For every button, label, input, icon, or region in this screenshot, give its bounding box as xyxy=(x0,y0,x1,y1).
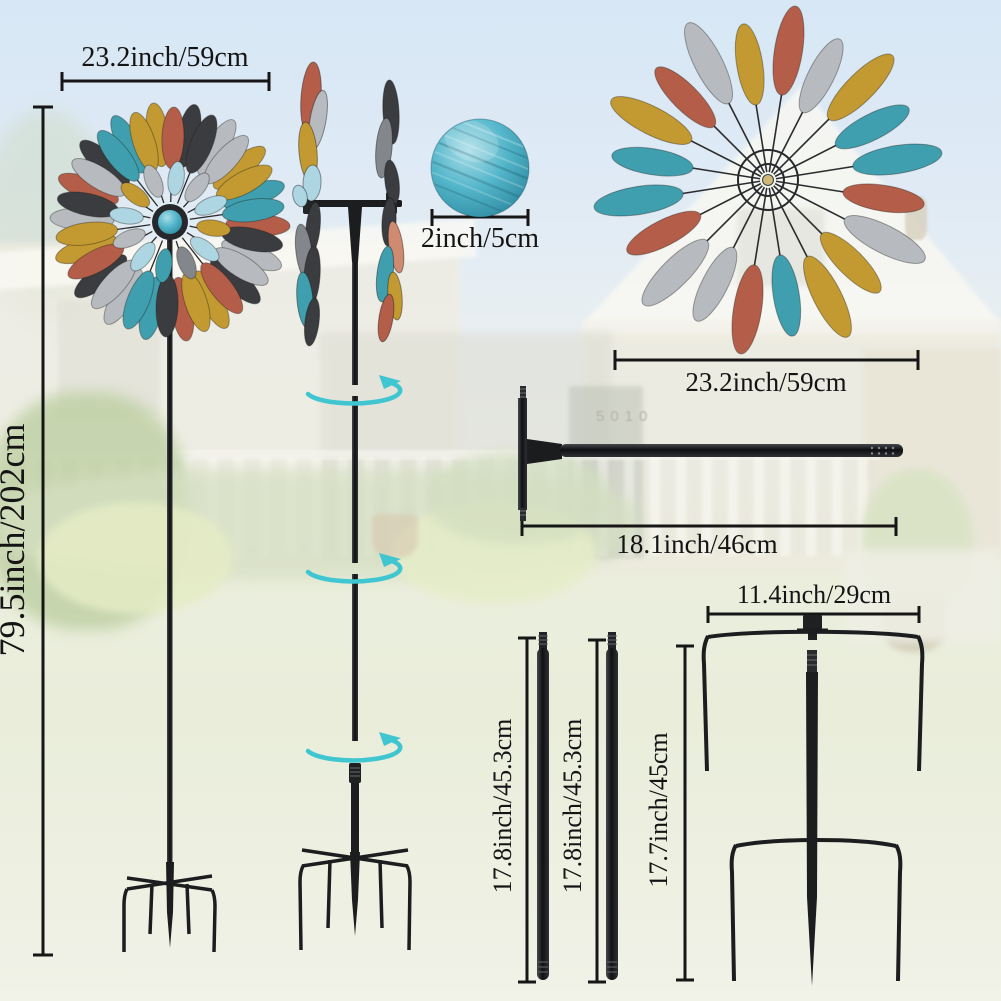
pole-segment-2 xyxy=(352,396,358,563)
extension-pole-2 xyxy=(606,632,618,980)
spinner-blade xyxy=(841,179,926,218)
spinner-spoke xyxy=(706,186,763,243)
measure-pole2-length: 17.8inch/45.3cm xyxy=(558,640,606,982)
pole-segment-3 xyxy=(352,574,358,741)
spinner-spoke xyxy=(769,93,782,172)
spinner-width-label: 23.2inch/59cm xyxy=(81,42,248,73)
t-connector-rod xyxy=(518,386,903,521)
wheel-width-label: 23.2inch/59cm xyxy=(685,367,846,397)
spinner-spoke xyxy=(774,118,831,175)
edge-blade xyxy=(382,159,401,204)
assembled-spinner-side-view xyxy=(290,61,410,950)
stake-thread-top xyxy=(807,650,817,672)
edge-blade xyxy=(375,293,396,343)
measure-stake-height: 17.7inch/45cm xyxy=(644,646,694,980)
assembled-spinner-front-view xyxy=(50,102,291,952)
spinner-blade xyxy=(196,218,232,239)
spinner-spoke xyxy=(776,166,855,179)
teal-ball-component xyxy=(420,110,544,218)
measure-spinner-width: 23.2inch/59cm xyxy=(62,42,269,91)
rod-horizontal-arm xyxy=(560,444,903,457)
spinner-blade xyxy=(767,253,806,338)
spinner-spoke xyxy=(754,188,767,267)
spinner-wheel-large xyxy=(592,4,944,356)
ground-stake-large xyxy=(704,615,923,986)
measure-rod-length: 18.1inch/46cm xyxy=(522,517,896,559)
spinner-hub xyxy=(763,175,774,186)
pole2-length-label: 17.8inch/45.3cm xyxy=(558,719,587,894)
measure-total-height: 79.5inch/202cm xyxy=(0,107,53,955)
pole-upper-taper xyxy=(348,207,362,262)
pole1-length-label: 17.8inch/45.3cm xyxy=(488,719,517,894)
spinner-hub xyxy=(158,210,182,234)
diagram-scene: 23.2inch/59cm 79.5inch/202cm 2inch/5cm 2… xyxy=(0,0,1001,1001)
stake-spike xyxy=(166,862,174,948)
stake-height-label: 17.7inch/45cm xyxy=(644,732,673,887)
measure-pole1-length: 17.8inch/45.3cm xyxy=(488,638,536,982)
rod-length-label: 18.1inch/46cm xyxy=(616,529,777,559)
rod-vertical-bar xyxy=(518,398,527,510)
extension-pole-1 xyxy=(537,632,549,980)
ground-stake-mid xyxy=(300,763,410,950)
product-dimension-diagram: 5010 xyxy=(0,0,1001,1001)
spinner-blade xyxy=(108,206,144,227)
rod-junction-collar xyxy=(527,439,562,464)
spinner-blade xyxy=(610,142,695,181)
spinner-wheel-front xyxy=(50,102,291,343)
spinner-blade xyxy=(730,22,769,107)
spinner-spoke xyxy=(681,181,760,194)
ball-diameter-label: 2inch/5cm xyxy=(421,223,539,254)
total-height-label: 79.5inch/202cm xyxy=(0,424,32,657)
pole-segment-1 xyxy=(352,262,358,385)
stake-center-spike xyxy=(806,672,818,986)
measure-wheel-width: 23.2inch/59cm xyxy=(615,350,918,397)
stake-width-label: 11.4inch/29cm xyxy=(737,580,891,609)
